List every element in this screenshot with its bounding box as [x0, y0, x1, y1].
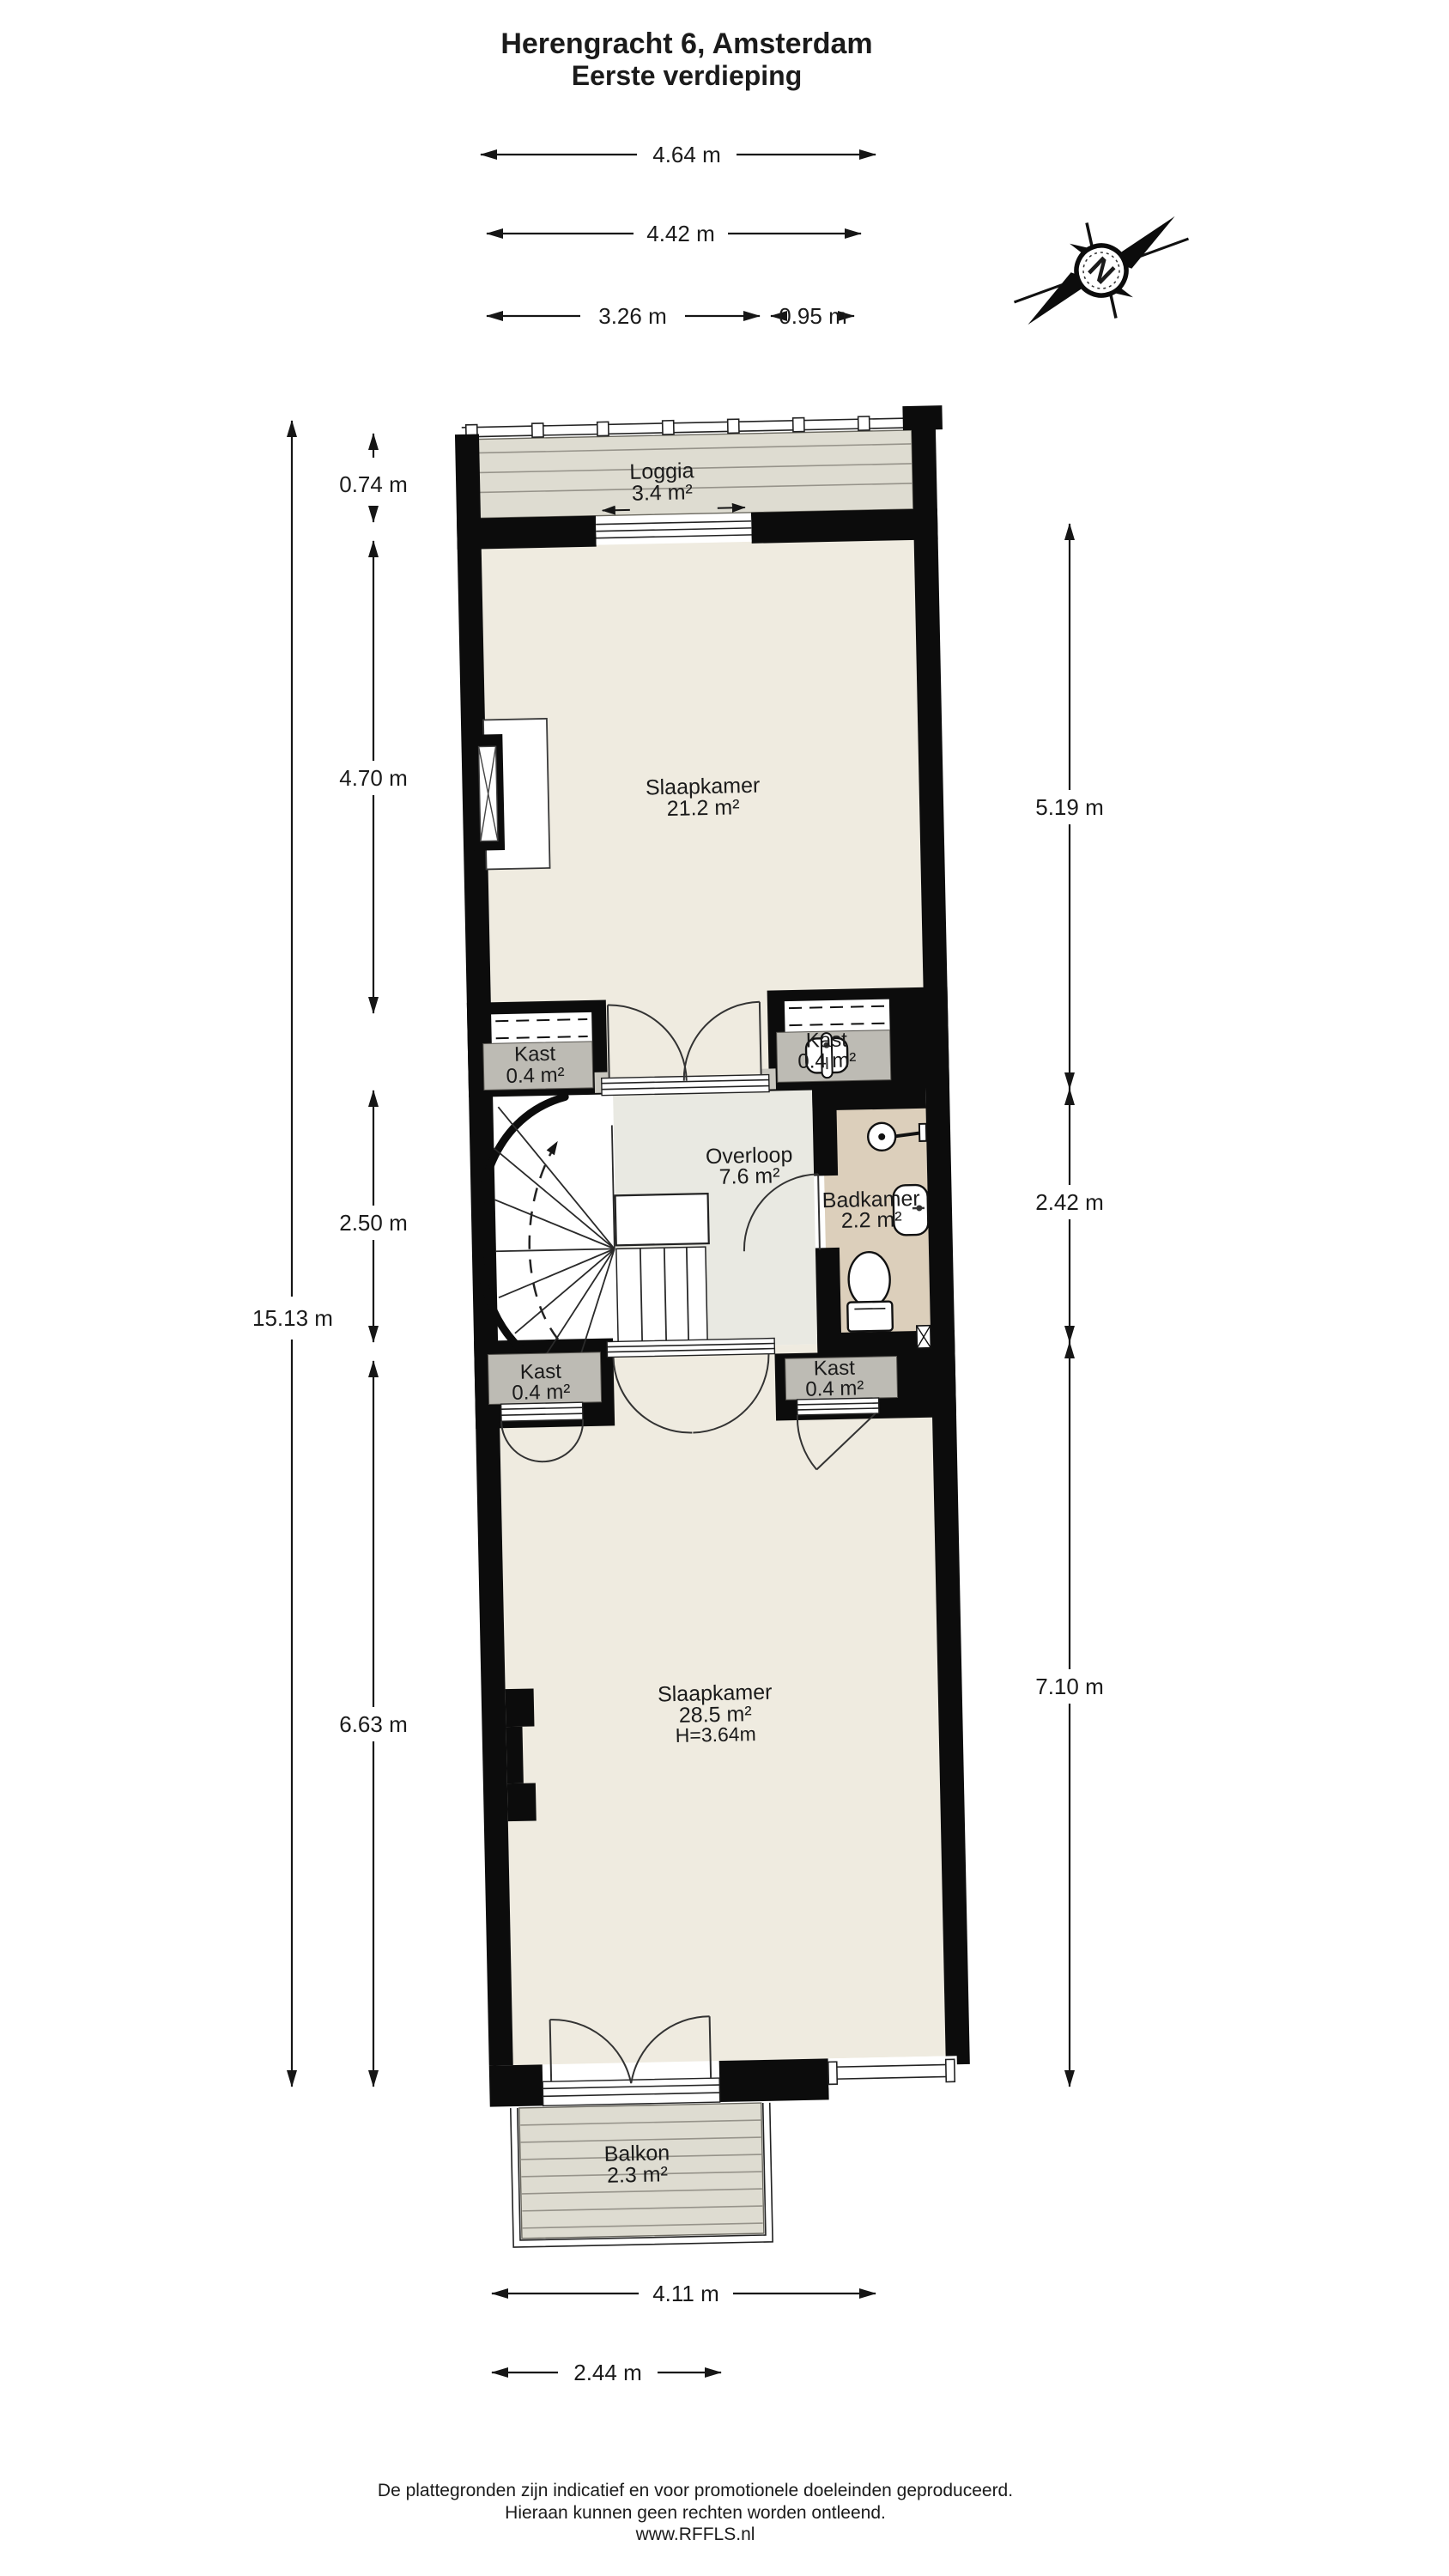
dim-top-left-part: 3.26 m	[598, 303, 667, 329]
room-loggia	[462, 416, 929, 519]
badkamer-area: 2.2 m²	[841, 1207, 902, 1232]
toilet-icon	[846, 1252, 893, 1332]
slaapkamer-beneden-height: H=3.64m	[675, 1722, 755, 1747]
kast-onder-rechts-area: 0.4 m²	[805, 1376, 864, 1400]
dim-left-loggia: 0.74 m	[339, 471, 408, 497]
kast-boven-links-area: 0.4 m²	[506, 1064, 565, 1088]
overloop-area: 7.6 m²	[718, 1163, 779, 1188]
balkon-area: 2.3 m²	[607, 2162, 668, 2187]
kast-onder-links-area: 0.4 m²	[512, 1381, 571, 1405]
dim-left-total: 15.13 m	[252, 1305, 333, 1331]
slaapkamer-boven-area: 21.2 m²	[666, 795, 739, 821]
page-title: Herengracht 6, Amsterdam	[500, 27, 872, 60]
vent-icon	[917, 1326, 931, 1348]
dim-right-mid: 2.42 m	[1035, 1189, 1104, 1215]
footer-line3: www.RFFLS.nl	[635, 2524, 755, 2544]
floorplan: Loggia 3.4 m² Slaapkamer 21.2 m² Kast 0.…	[454, 405, 980, 2247]
dim-right-bottom: 7.10 m	[1035, 1674, 1104, 1699]
dim-right-top: 5.19 m	[1035, 794, 1104, 820]
window	[828, 2056, 958, 2087]
footer-disclaimer: De plattegronden zijn indicatief en voor…	[378, 2481, 1013, 2544]
dim-bottom-outer: 4.11 m	[652, 2281, 719, 2306]
kast-boven-rechts-area: 0.4 m²	[797, 1048, 857, 1072]
dim-top-outer: 4.64 m	[652, 142, 721, 167]
kast-boven-links-name: Kast	[514, 1042, 556, 1066]
dim-left-slaapkamer: 4.70 m	[339, 765, 408, 791]
floorplan-canvas: Herengracht 6, Amsterdam Eerste verdiepi…	[0, 0, 1449, 2576]
chimney-niche	[471, 719, 550, 870]
footer-line1: De plattegronden zijn indicatief en voor…	[378, 2481, 1013, 2500]
page-subtitle: Eerste verdieping	[572, 60, 803, 91]
loggia-area: 3.4 m²	[632, 480, 693, 505]
footer-line2: Hieraan kunnen geen rechten worden ontle…	[505, 2503, 886, 2523]
dim-bottom-balkon: 2.44 m	[573, 2360, 642, 2385]
dim-top-inner: 4.42 m	[646, 221, 715, 246]
dim-left-overloop: 2.50 m	[339, 1210, 408, 1236]
dim-left-slaapkamer2: 6.63 m	[339, 1711, 408, 1737]
dim-top-right-part: 0.95 m	[779, 303, 847, 329]
north-arrow-icon: N	[997, 192, 1206, 349]
